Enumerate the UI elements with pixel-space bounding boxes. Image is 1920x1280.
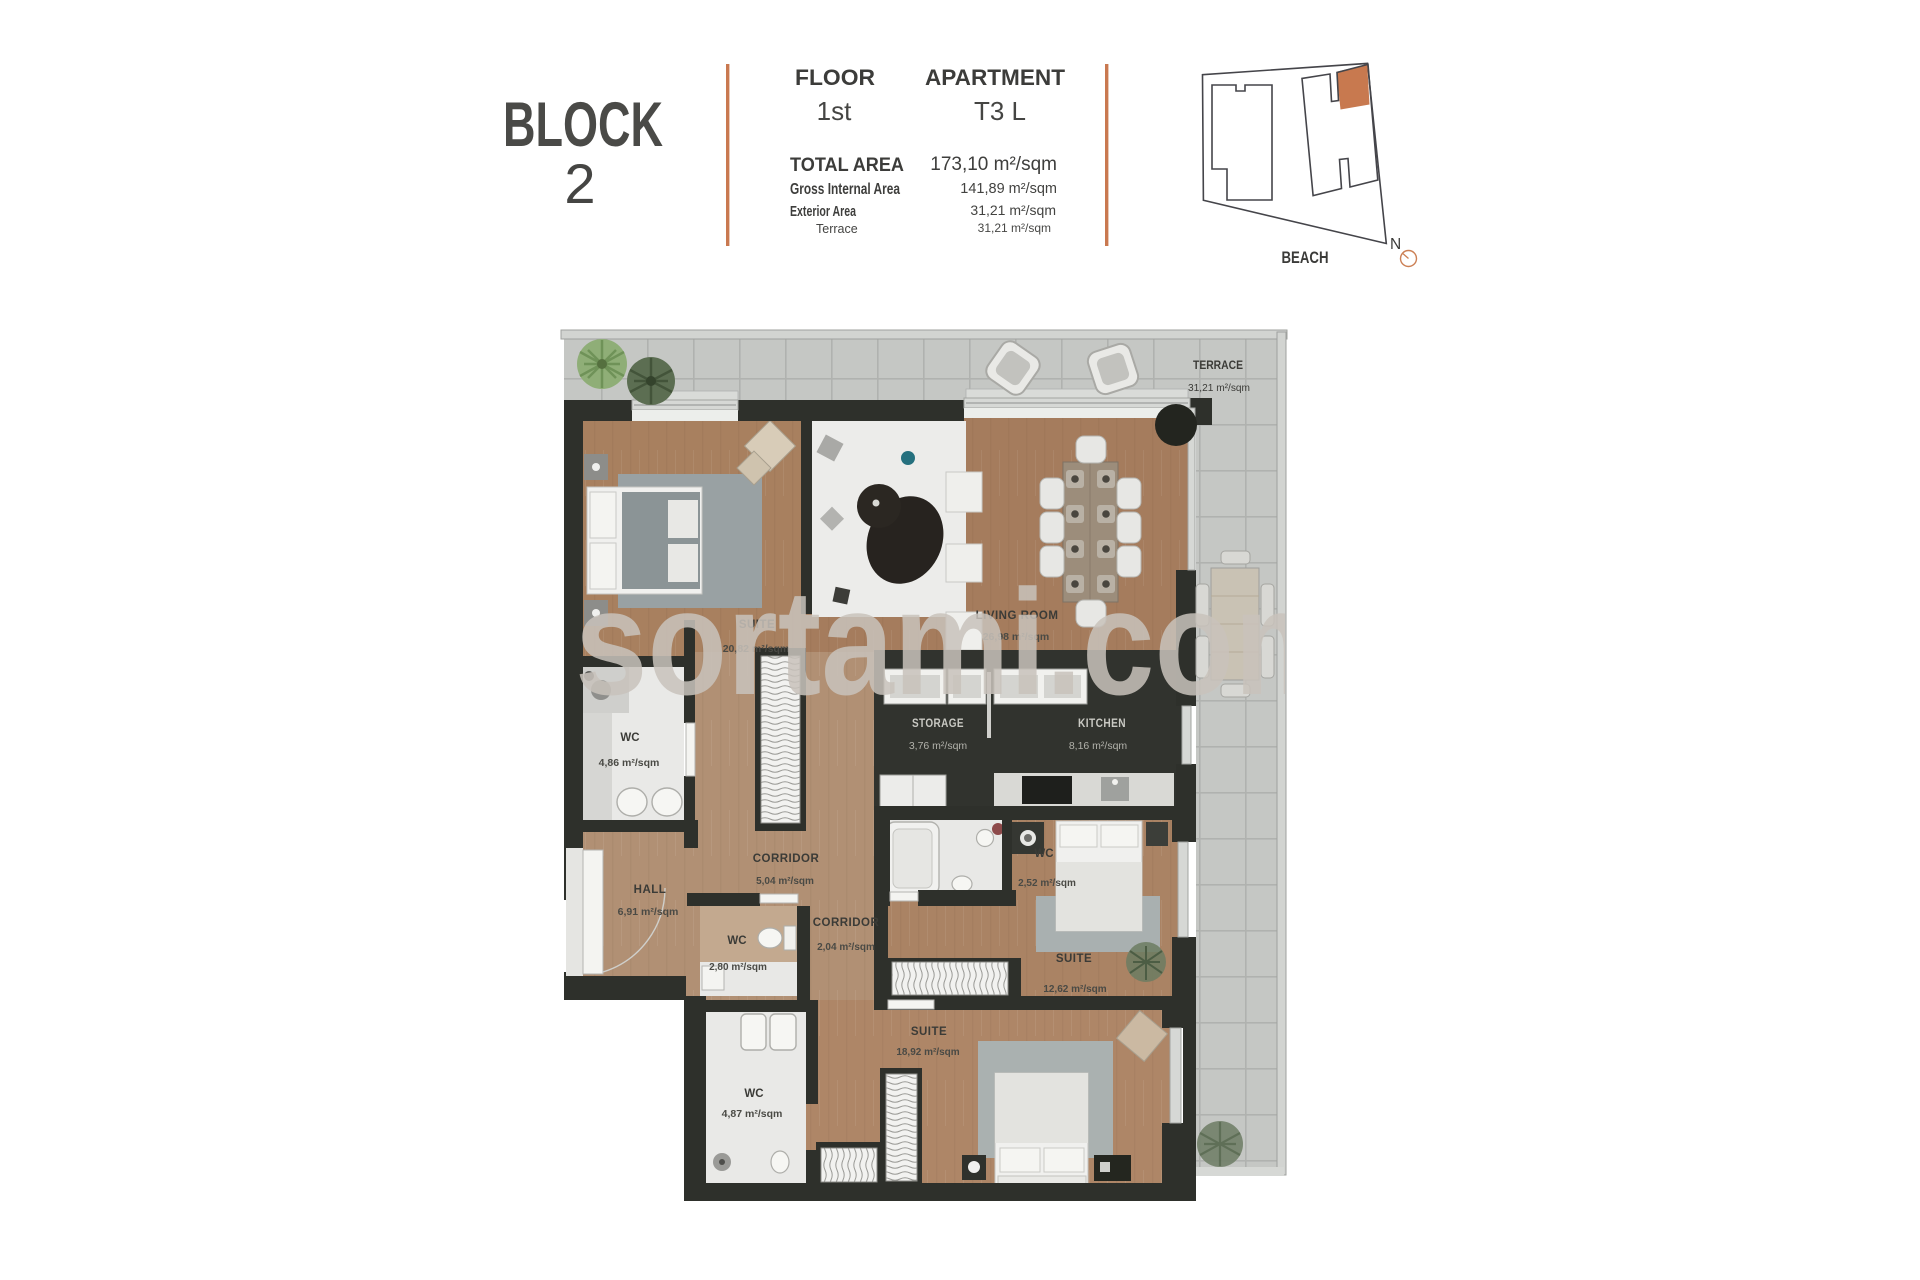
svg-text:WC: WC bbox=[744, 1088, 763, 1100]
svg-text:31,21 m²/sqm: 31,21 m²/sqm bbox=[978, 221, 1051, 235]
svg-text:6,91 m²/sqm: 6,91 m²/sqm bbox=[618, 906, 679, 918]
svg-text:SUITE: SUITE bbox=[1056, 953, 1092, 965]
svg-text:TERRACE: TERRACE bbox=[1193, 360, 1243, 372]
svg-text:HALL: HALL bbox=[634, 884, 667, 896]
svg-text:BLOCK: BLOCK bbox=[503, 90, 663, 160]
svg-text:2,04 m²/sqm: 2,04 m²/sqm bbox=[817, 942, 875, 953]
svg-text:CORRIDOR: CORRIDOR bbox=[753, 853, 820, 865]
svg-text:4,87 m²/sqm: 4,87 m²/sqm bbox=[722, 1108, 783, 1120]
svg-text:12,62 m²/sqm: 12,62 m²/sqm bbox=[1043, 984, 1106, 995]
svg-text:1st: 1st bbox=[817, 96, 852, 126]
svg-text:SUITE: SUITE bbox=[911, 1026, 947, 1038]
svg-text:2,52 m²/sqm: 2,52 m²/sqm bbox=[1018, 878, 1076, 889]
svg-text:3,76 m²/sqm: 3,76 m²/sqm bbox=[909, 740, 968, 752]
svg-text:4,86 m²/sqm: 4,86 m²/sqm bbox=[599, 757, 660, 769]
svg-text:WC: WC bbox=[1034, 848, 1053, 860]
svg-text:WC: WC bbox=[727, 935, 746, 947]
svg-text:Terrace: Terrace bbox=[816, 222, 858, 236]
svg-text:8,16 m²/sqm: 8,16 m²/sqm bbox=[1069, 740, 1128, 752]
svg-text:N: N bbox=[1390, 236, 1401, 253]
svg-text:WC: WC bbox=[620, 732, 639, 744]
svg-text:sortami.com: sortami.com bbox=[575, 558, 1350, 726]
svg-text:2: 2 bbox=[564, 152, 595, 215]
svg-text:Exterior Area: Exterior Area bbox=[790, 203, 856, 220]
svg-text:5,04 m²/sqm: 5,04 m²/sqm bbox=[756, 876, 814, 887]
svg-text:CORRIDOR: CORRIDOR bbox=[813, 917, 880, 929]
svg-text:Gross Internal Area: Gross Internal Area bbox=[790, 181, 900, 198]
svg-text:31,21 m²/sqm: 31,21 m²/sqm bbox=[1188, 382, 1250, 394]
svg-text:31,21 m²/sqm: 31,21 m²/sqm bbox=[970, 202, 1056, 218]
svg-text:APARTMENT: APARTMENT bbox=[925, 65, 1066, 90]
svg-text:18,92 m²/sqm: 18,92 m²/sqm bbox=[896, 1047, 959, 1058]
svg-text:T3 L: T3 L bbox=[974, 96, 1026, 126]
svg-text:2,80 m²/sqm: 2,80 m²/sqm bbox=[709, 962, 767, 973]
svg-text:FLOOR: FLOOR bbox=[795, 65, 875, 90]
svg-text:BEACH: BEACH bbox=[1282, 249, 1329, 267]
svg-text:141,89 m²/sqm: 141,89 m²/sqm bbox=[960, 181, 1057, 197]
svg-text:173,10 m²/sqm: 173,10 m²/sqm bbox=[930, 154, 1057, 175]
svg-text:TOTAL AREA: TOTAL AREA bbox=[790, 155, 904, 176]
